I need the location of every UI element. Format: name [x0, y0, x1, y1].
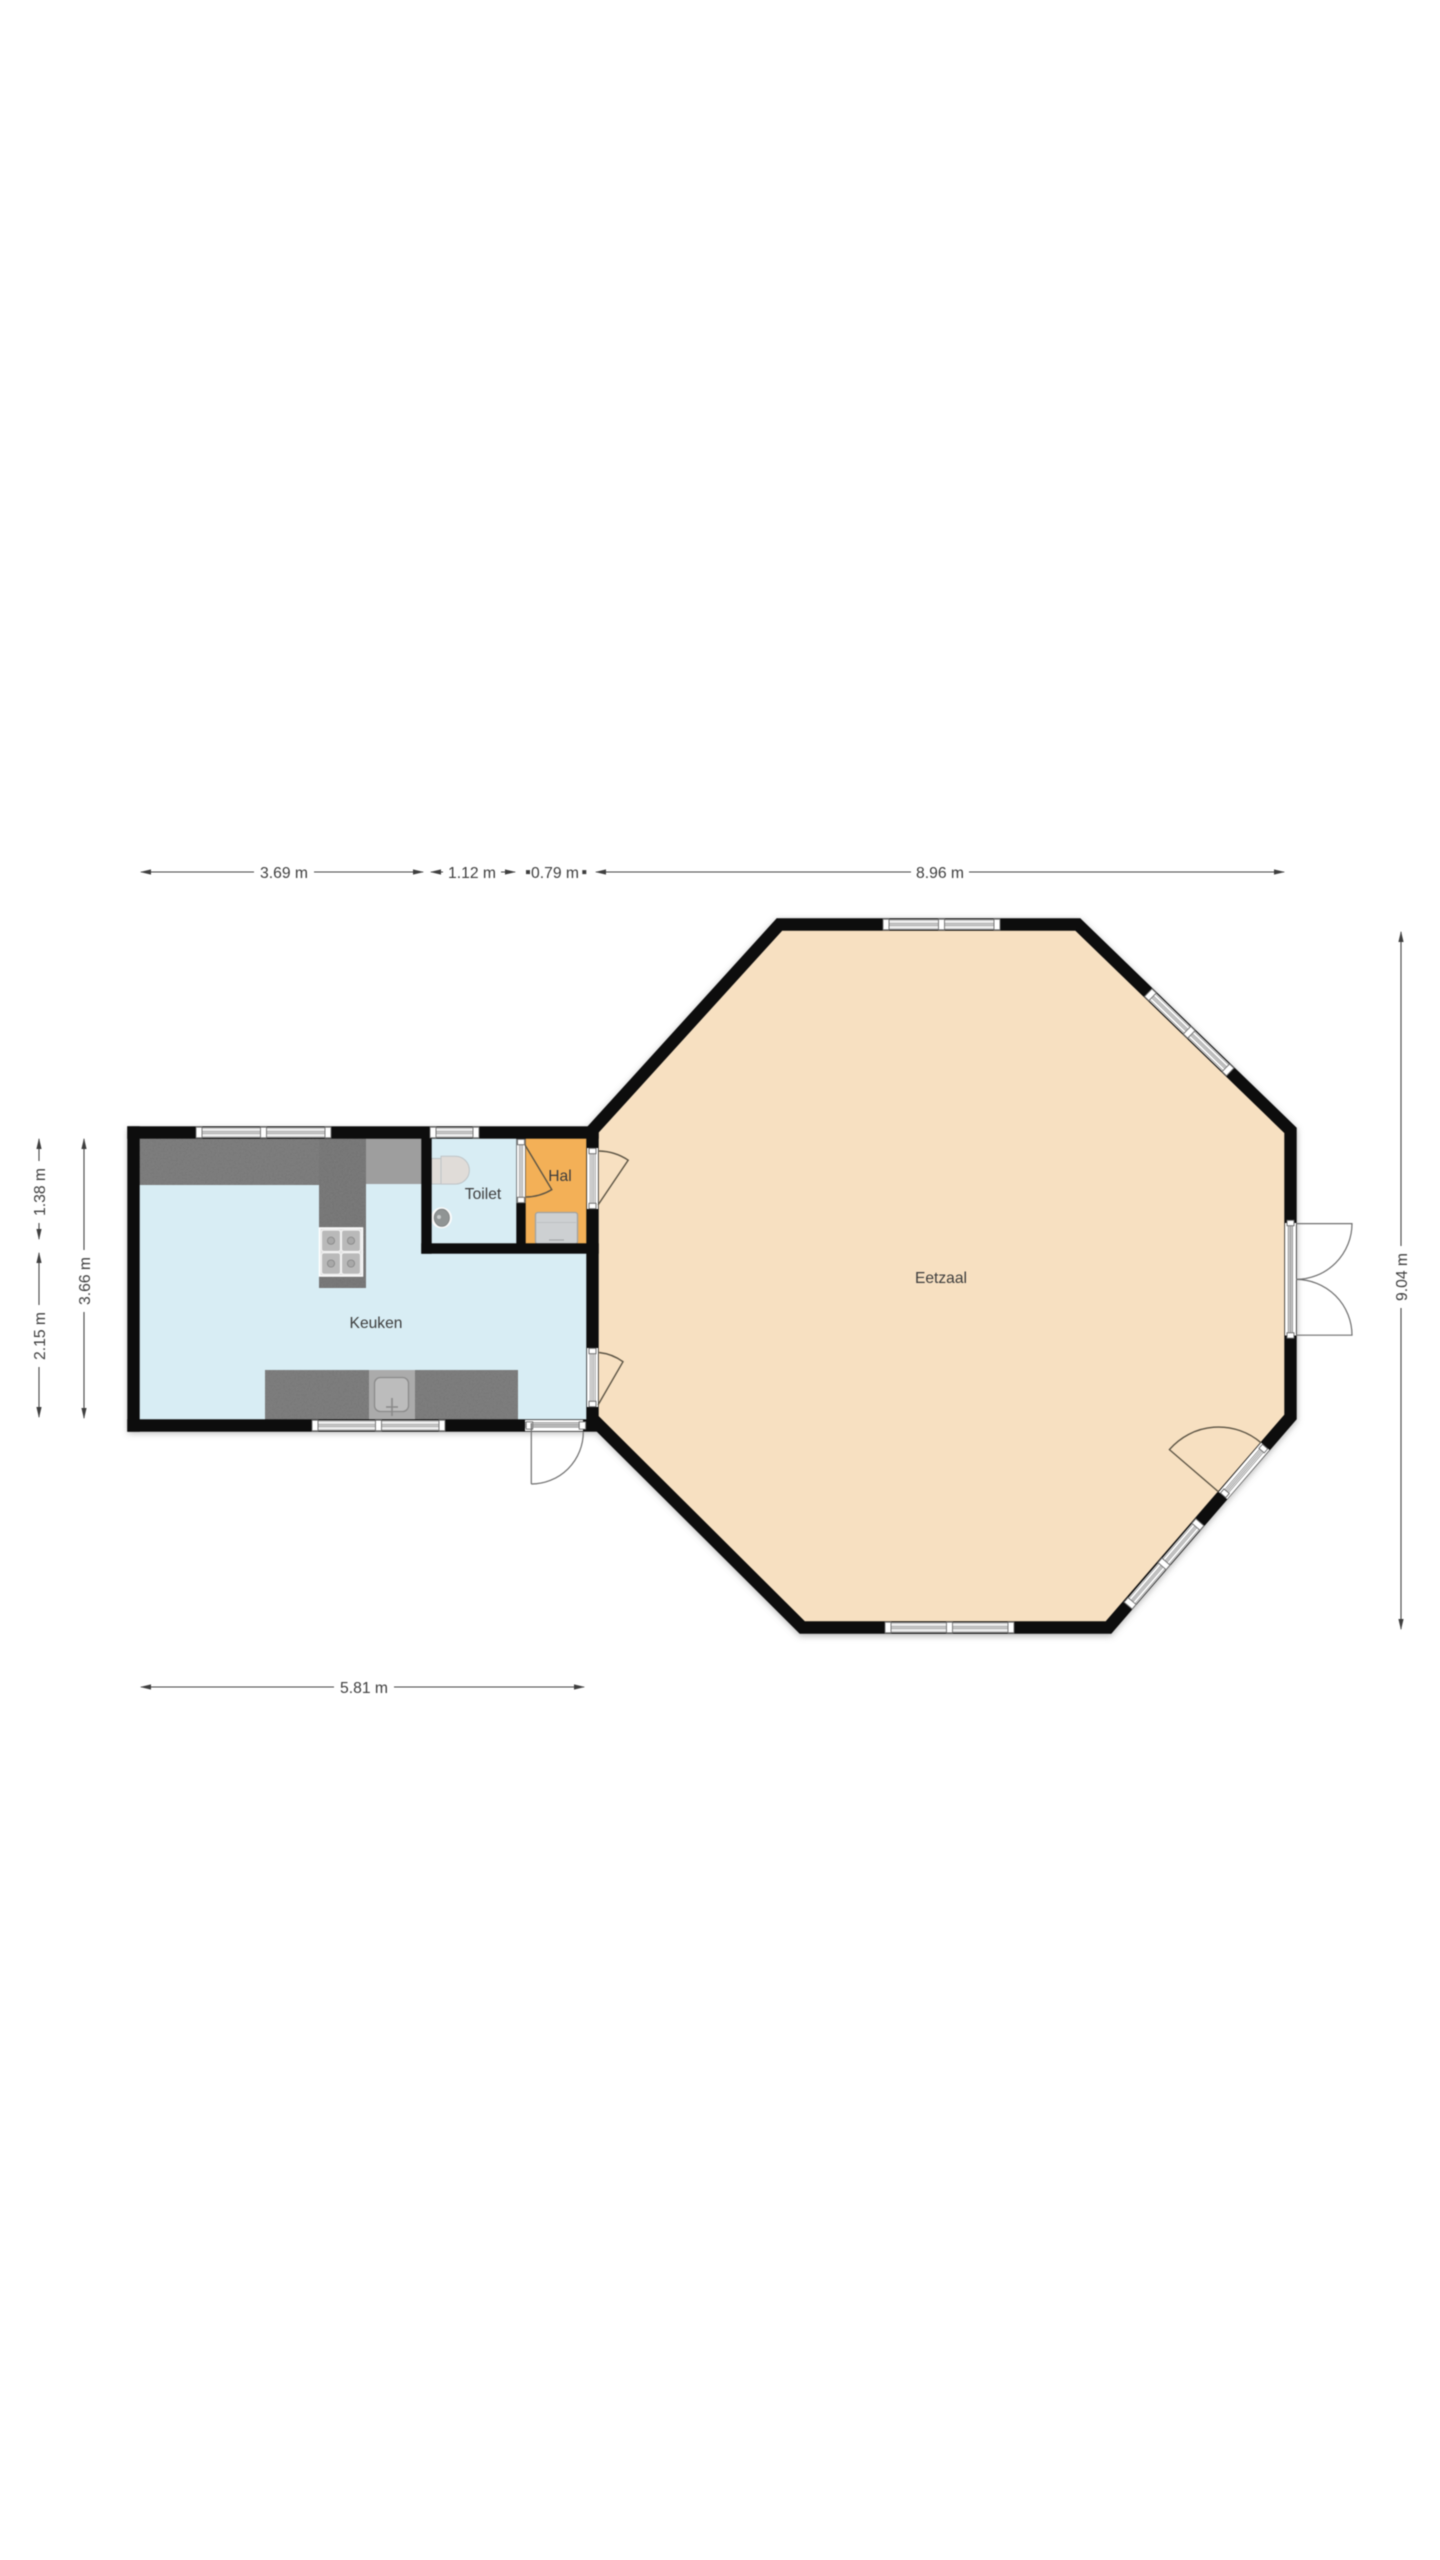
svg-text:3.66 m: 3.66 m [77, 1257, 94, 1305]
svg-text:Keuken: Keuken [350, 1315, 403, 1332]
svg-text:Toilet: Toilet [465, 1186, 502, 1203]
svg-text:0.79 m: 0.79 m [531, 865, 579, 882]
svg-text:9.04 m: 9.04 m [1394, 1253, 1411, 1301]
svg-text:1.38 m: 1.38 m [32, 1168, 49, 1216]
svg-text:Eetzaal: Eetzaal [915, 1270, 967, 1287]
svg-text:5.81 m: 5.81 m [340, 1680, 388, 1697]
svg-text:8.96 m: 8.96 m [916, 865, 964, 882]
svg-text:Hal: Hal [548, 1168, 571, 1185]
svg-text:3.69 m: 3.69 m [260, 865, 308, 882]
svg-text:2.15 m: 2.15 m [32, 1312, 49, 1360]
svg-text:1.12 m: 1.12 m [448, 865, 496, 882]
